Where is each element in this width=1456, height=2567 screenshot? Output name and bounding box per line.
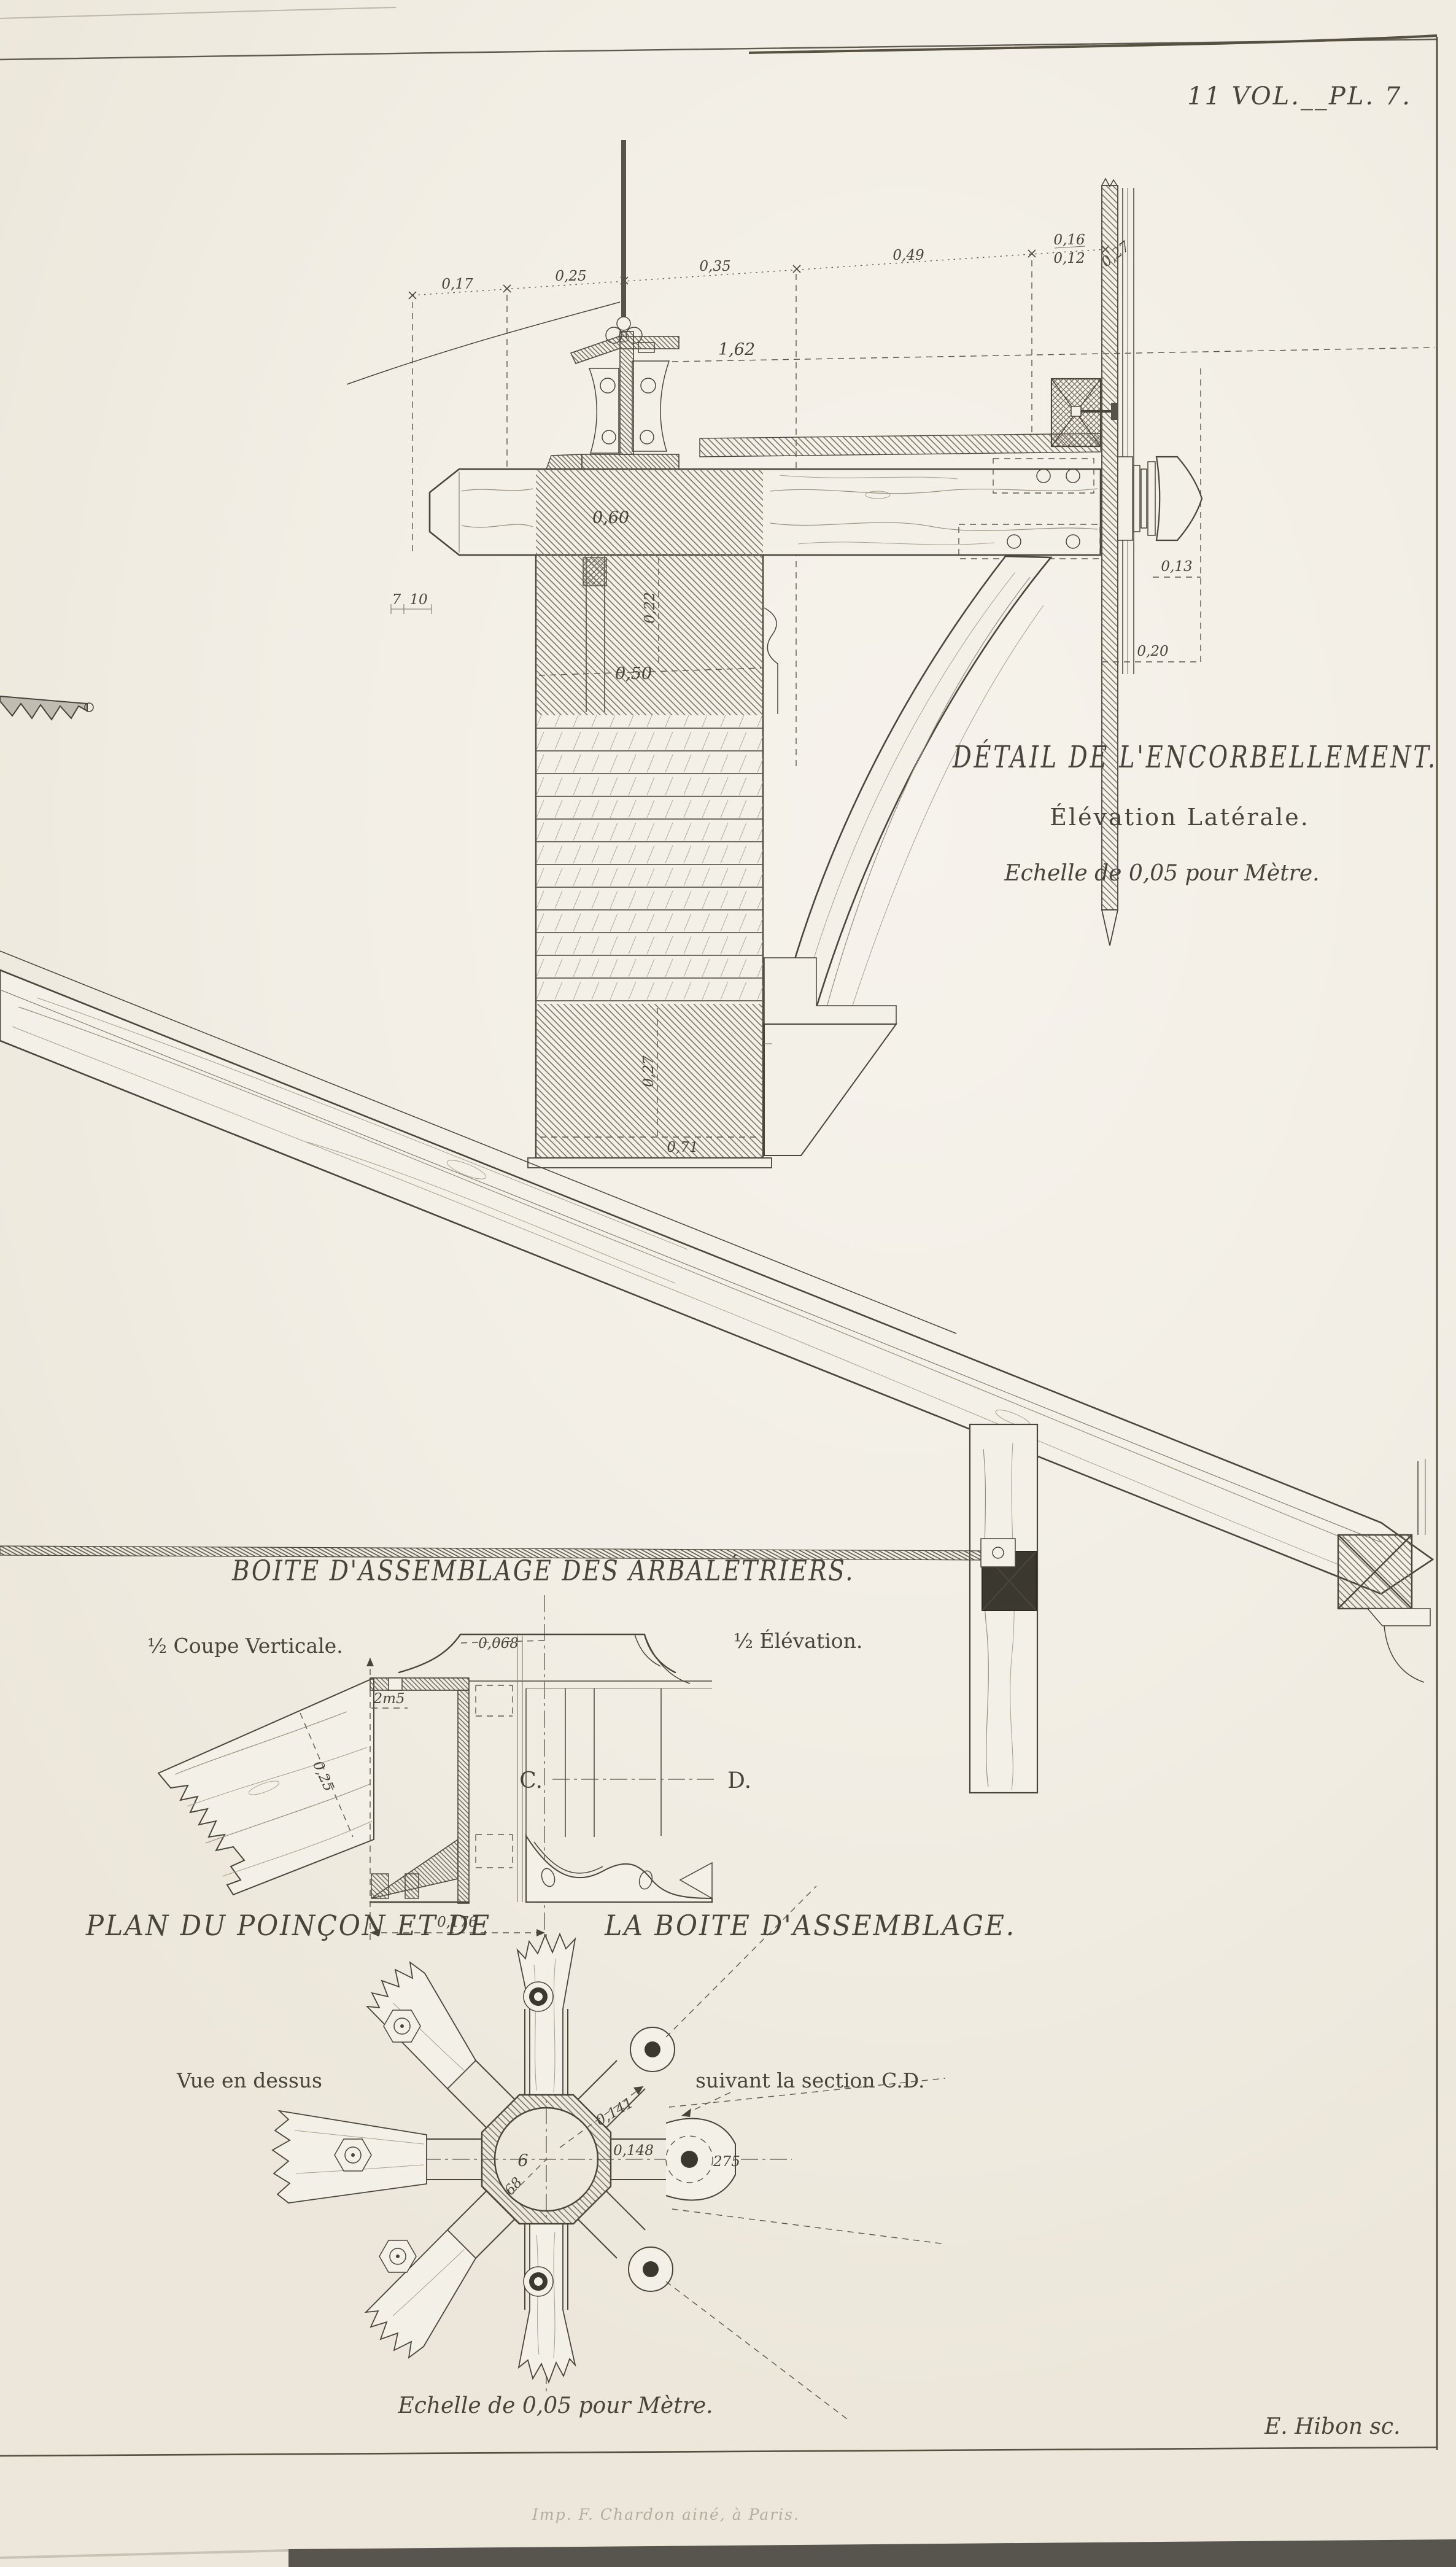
- plan-view-label-left: Vue en dessus: [176, 2068, 322, 2092]
- dim-0068: 0,068: [478, 1636, 519, 1652]
- box-left-view-label: ½ Coupe Verticale.: [147, 1634, 343, 1658]
- ridge-cable: [347, 302, 620, 384]
- dim-049: 0,49: [893, 247, 924, 263]
- dim-0148: 0,148: [613, 2143, 654, 2159]
- corbel-subtitle: Élévation Latérale.: [1050, 804, 1310, 831]
- corbel-scale-note: Echelle de 0,05 pour Mètre.: [1004, 861, 1319, 886]
- assembly-box-detail: BOITE D'ASSEMBLAGE DES ARBALÉTRIERS. ½ C…: [147, 1553, 862, 1945]
- post-and-purlin: [970, 1424, 1037, 1793]
- torn-fragment: [0, 696, 93, 720]
- page-edge-line: [0, 7, 396, 18]
- section-line-cd: C. D.: [519, 1768, 751, 1793]
- ring-bolt-n: [524, 1982, 553, 2011]
- dim-162: 1,62: [718, 340, 755, 359]
- dim-bolt-275: 275: [713, 2154, 740, 2170]
- plate-drawing: 0,17 0,25 0,35 0,49 0,16 0,12 0,27 1,62: [0, 0, 1456, 2567]
- plan-title-left: PLAN DU POINÇON ET DE: [85, 1909, 491, 1942]
- dim-050: 0,50: [615, 664, 652, 683]
- dim-035: 0,35: [699, 258, 730, 274]
- dim-025: 0,25: [555, 268, 586, 284]
- dim-2m5: 2m5: [373, 1691, 405, 1707]
- dim-022: 0,22: [642, 592, 658, 623]
- page-bottom-edge: [0, 2550, 288, 2558]
- beam-section-hatch: [536, 470, 763, 554]
- engraved-plate-page: { "plate": { "number": "11 VOL.__PL. 7."…: [0, 0, 1456, 2567]
- section-label-d: D.: [727, 1768, 751, 1793]
- dim-0141: 0,141: [593, 2095, 636, 2129]
- corbel-title: DÉTAIL DE L'ENCORBELLEMENT.: [952, 739, 1438, 775]
- plan-scale-note: Echelle de 0,05 pour Mètre.: [397, 2393, 713, 2418]
- plan-view-label-right: suivant la section C.D.: [695, 2068, 925, 2092]
- finial-bracket: [546, 332, 679, 469]
- ring-bolt-s: [524, 2267, 553, 2296]
- engraver-credit: E. Hibon sc.: [1264, 2414, 1401, 2439]
- corbel-curved-brace: [764, 556, 1051, 1155]
- box-title: BOITE D'ASSEMBLAGE DES ARBALÉTRIERS.: [231, 1553, 854, 1587]
- dim-060: 0,60: [592, 508, 629, 527]
- bottom-border: [0, 2447, 1437, 2456]
- cresting-rail: [700, 433, 1101, 457]
- console-shoe: [764, 958, 896, 1024]
- dim-012: 0,12: [1053, 250, 1085, 266]
- corbel-elevation-drawing: 0,17 0,25 0,35 0,49 0,16 0,12 0,27 1,62: [0, 140, 1438, 1168]
- plate-number: 11 VOL.__PL. 7.: [1187, 82, 1412, 111]
- kingpost-plan: PLAN DU POINÇON ET DE LA BOITE D'ASSEMBL…: [85, 1886, 1016, 2419]
- ogee-moulding: [764, 608, 778, 714]
- dim-013: 0,13: [1161, 559, 1192, 575]
- dim-016: 0,16: [1053, 232, 1085, 248]
- dim-10: 10: [409, 592, 427, 608]
- dim-017: 0,17: [441, 276, 473, 292]
- dim-7: 7: [392, 592, 401, 608]
- plan-title-right: LA BOITE D'ASSEMBLAGE.: [604, 1909, 1016, 1942]
- dim-020: 0,20: [1137, 643, 1168, 659]
- dim-hub-6: 6: [517, 2151, 528, 2170]
- dim-071: 0,71: [667, 1140, 698, 1155]
- box-rafter-stub: 0,25: [158, 1678, 374, 1895]
- printer-imprint: Imp. F. Chardon ainé, à Paris.: [532, 2506, 800, 2523]
- dim-027: 0,27: [641, 1055, 657, 1087]
- finial-rod: [621, 140, 626, 317]
- box-right-view-label: ½ Élévation.: [734, 1628, 862, 1653]
- section-label-c: C.: [519, 1768, 543, 1793]
- page-bottom-shadow: [288, 2539, 1456, 2567]
